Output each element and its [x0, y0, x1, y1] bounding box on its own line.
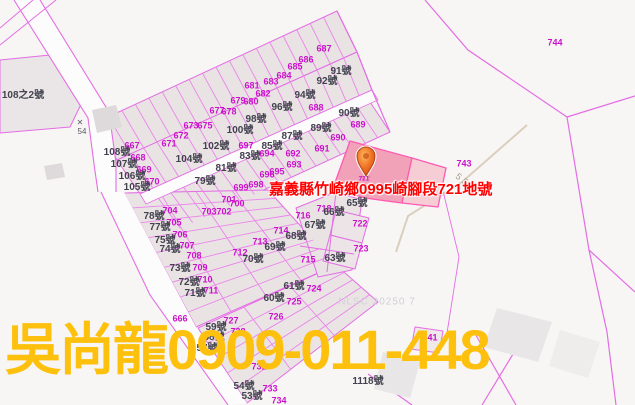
survey-benchmark-icon: ✕ [77, 119, 84, 127]
contact-watermark: 吳尚龍0909-011-448 [5, 322, 489, 378]
selected-parcel-label: 嘉義縣竹崎鄉0995崎腳段721地號 [269, 182, 492, 197]
source-watermark: NLSC 20250 7 [338, 297, 416, 308]
survey-benchmark-number: 54 [78, 128, 87, 136]
cadastral-map[interactable]: 6676686696706716726736756776786796806816… [0, 0, 635, 405]
